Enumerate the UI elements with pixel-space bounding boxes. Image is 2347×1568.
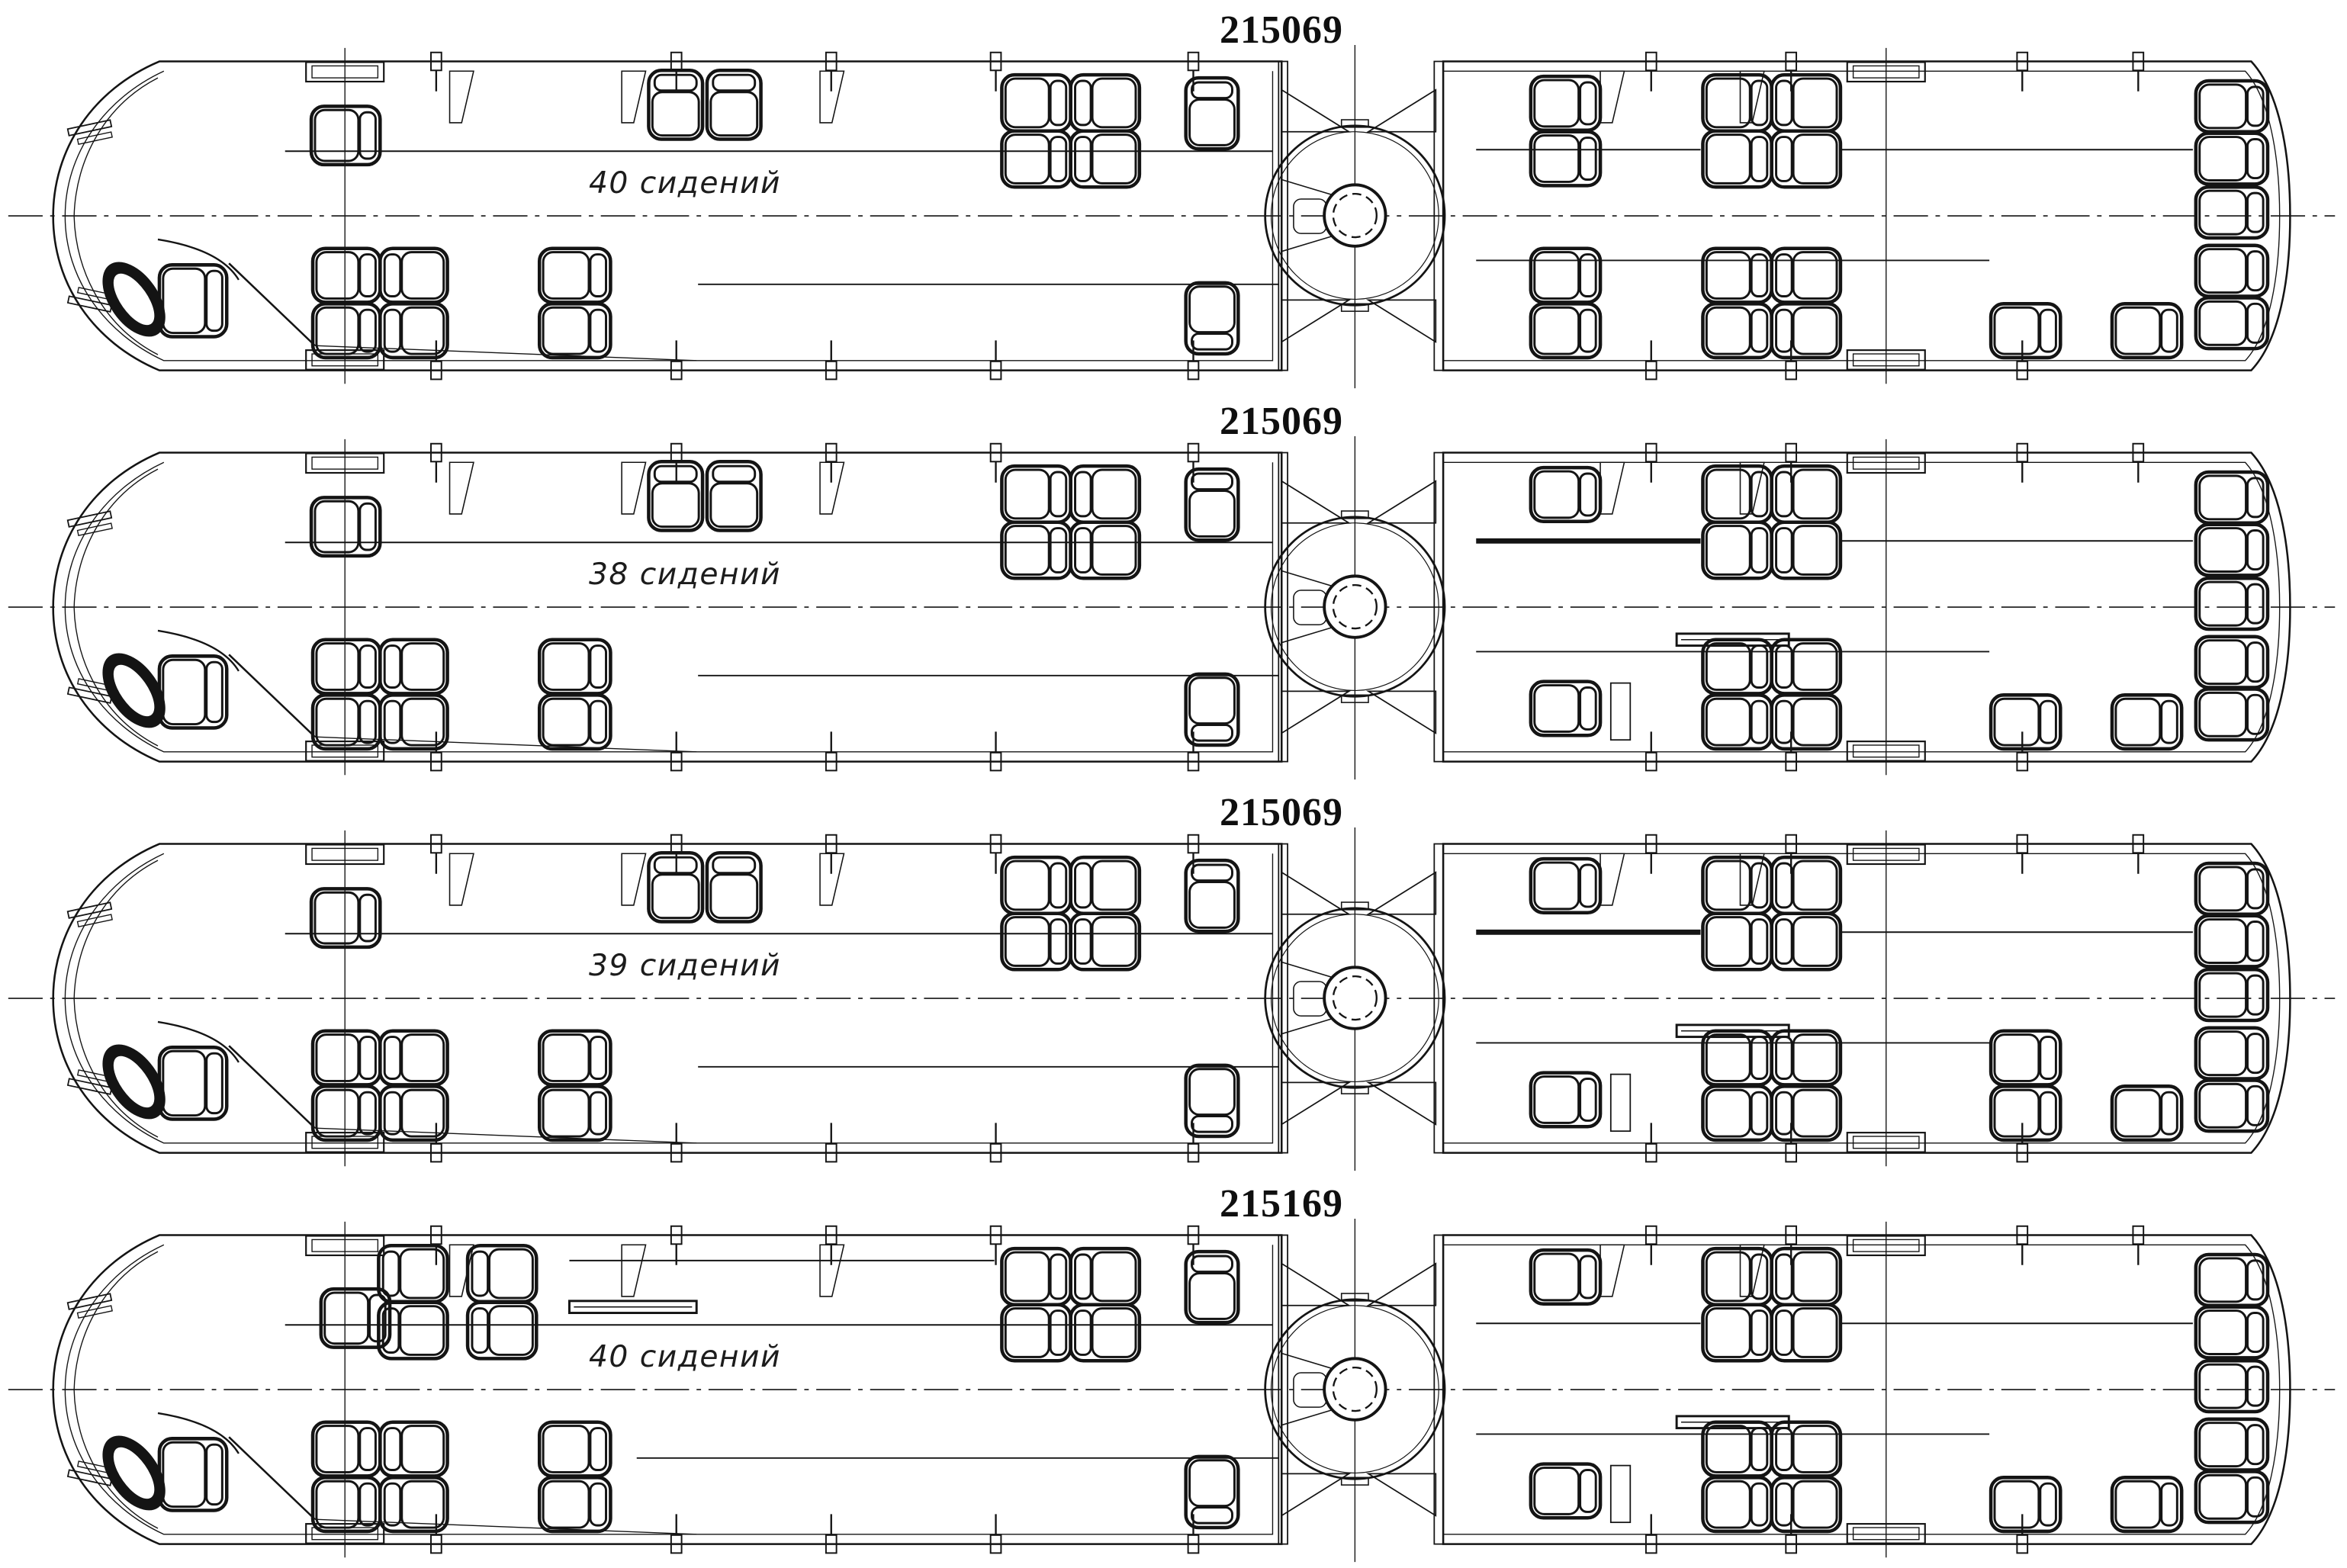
seat-outline — [313, 249, 380, 303]
passenger-seat — [380, 1031, 447, 1085]
seat-cushion — [543, 1090, 589, 1136]
seat-outline — [1071, 131, 1140, 188]
seat-backrest — [2040, 310, 2056, 352]
seat-cushion — [1706, 1090, 1750, 1136]
seat-cushion — [1092, 861, 1136, 910]
seat-cushion — [1092, 470, 1136, 519]
seat-backrest — [2248, 1034, 2264, 1073]
bus-floorplan-drawing: 40 сидений — [0, 43, 2347, 394]
stanchion — [2133, 1226, 2143, 1265]
seat-backrest — [1776, 529, 1792, 573]
passenger-seat — [539, 304, 610, 358]
door-pillar — [1600, 853, 1624, 905]
bus-plan-row-2: 215069 38 сидений — [0, 391, 2347, 782]
seat-backrest — [1580, 1079, 1596, 1121]
passenger-seat — [380, 249, 447, 303]
seat-backrest — [1075, 137, 1092, 182]
joint-wheel-flap — [1368, 300, 1436, 342]
bus-floorplan-drawing: 39 сидений — [0, 825, 2347, 1177]
door-pillar — [450, 462, 474, 514]
seat-cushion — [1190, 1460, 1235, 1506]
passenger-seat — [539, 640, 610, 694]
seat-cushion — [1995, 699, 2039, 745]
door-pillar — [1600, 71, 1624, 123]
seat-outline — [1531, 1464, 1600, 1518]
seat-backrest — [590, 1483, 606, 1525]
passenger-seat — [1001, 131, 1070, 188]
passenger-seat — [1702, 1086, 1771, 1140]
seat-backrest — [2248, 584, 2264, 623]
seat-outline — [1702, 249, 1771, 303]
passenger-seat — [1071, 1248, 1140, 1305]
stanchion — [431, 53, 442, 92]
seat-outline — [2196, 689, 2268, 740]
seat-backrest — [207, 1444, 223, 1504]
seat-cushion — [163, 1442, 205, 1506]
passenger-seat — [2196, 1361, 2268, 1412]
passenger-seat — [1702, 522, 1771, 579]
seat-outline — [1531, 468, 1600, 522]
seat-cushion — [1535, 80, 1579, 127]
passenger-seat — [2196, 1471, 2268, 1522]
passenger-seat — [539, 1422, 610, 1476]
seat-backrest — [1776, 1255, 1792, 1299]
stanchion — [2017, 340, 2027, 379]
stanchion — [671, 1226, 682, 1265]
driver-area — [68, 902, 696, 1143]
bus-plan-row-4: 215169 40 сидений — [0, 1174, 2347, 1565]
passenger-seat — [2196, 637, 2268, 688]
joint-wheel-flap — [1281, 1082, 1349, 1124]
stanchion — [991, 1226, 1001, 1265]
seat-outline — [1702, 640, 1771, 694]
seat-backrest — [1075, 920, 1092, 964]
seat-outline — [2196, 1307, 2268, 1358]
seat-backrest — [1751, 920, 1767, 964]
seat-backrest — [360, 1037, 376, 1079]
driver-seat — [159, 1047, 227, 1119]
seats-count-label: 38 сидений — [589, 557, 781, 592]
seat-backrest — [713, 466, 755, 482]
seat-backrest — [360, 646, 376, 688]
stanchion — [1646, 1514, 1657, 1553]
passenger-seat — [1772, 914, 1841, 970]
seat-outline — [1531, 1250, 1600, 1304]
seat-cushion — [1706, 861, 1750, 910]
passenger-seat — [1772, 1422, 1841, 1476]
seat-cushion — [1190, 882, 1235, 928]
seat-backrest — [1776, 701, 1792, 743]
seat-backrest — [1580, 82, 1596, 124]
passenger-seat — [1702, 640, 1771, 694]
passenger-seat — [380, 1422, 447, 1476]
seat-outline — [1071, 522, 1140, 579]
seat-backrest — [1751, 529, 1767, 573]
seat-outline — [2196, 133, 2268, 185]
seat-cushion — [1092, 526, 1136, 575]
passenger-seat — [539, 249, 610, 303]
seat-backrest — [1192, 865, 1233, 881]
seat-cushion — [2200, 137, 2246, 181]
seat-cushion — [2200, 867, 2246, 911]
seat-backrest — [1192, 1256, 1233, 1272]
passenger-seat — [1531, 859, 1600, 913]
passenger-seat — [311, 106, 380, 165]
seat-cushion — [1793, 1035, 1837, 1081]
seat-cushion — [163, 268, 205, 333]
passenger-seat — [1001, 1305, 1070, 1361]
passenger-seat — [1702, 249, 1771, 303]
seat-outline — [1702, 522, 1771, 579]
seat-outline — [380, 249, 447, 303]
seat-backrest — [1075, 81, 1092, 125]
stanchion — [991, 53, 1001, 92]
passenger-seat — [2196, 1419, 2268, 1470]
passenger-seat — [311, 888, 380, 947]
seat-outline — [1702, 695, 1771, 749]
seat-outline — [2196, 297, 2268, 349]
seat-cushion — [2200, 973, 2246, 1017]
seat-cushion — [1706, 1426, 1750, 1473]
seat-cushion — [1005, 1309, 1049, 1358]
seat-cushion — [1005, 917, 1049, 966]
seat-cushion — [2200, 529, 2246, 572]
seat-cushion — [1535, 252, 1579, 299]
seat-cushion — [1092, 917, 1136, 966]
seat-cushion — [1706, 1481, 1750, 1528]
door-pillar — [622, 462, 645, 514]
seat-cushion — [2116, 1481, 2160, 1528]
joint-wheel-flap — [1281, 1473, 1349, 1515]
passenger-seat — [1772, 304, 1841, 358]
seat-cushion — [1793, 917, 1837, 966]
passenger-seat — [1531, 682, 1600, 736]
seat-backrest — [2248, 1367, 2264, 1406]
seat-outline — [1772, 131, 1841, 188]
door-pillar — [622, 1245, 645, 1296]
seat-backrest — [1580, 310, 1596, 352]
seat-cushion — [1706, 252, 1750, 299]
passenger-seat — [539, 1031, 610, 1085]
passenger-seat — [1702, 1305, 1771, 1361]
seat-backrest — [1075, 529, 1092, 573]
seat-outline — [1772, 466, 1841, 522]
seat-outline — [1702, 131, 1771, 188]
seat-outline — [1702, 1305, 1771, 1361]
seat-cushion — [163, 660, 205, 724]
seat-backrest — [207, 662, 223, 721]
stanchion — [431, 444, 442, 483]
joint-wheel-flap — [1281, 872, 1349, 914]
seat-cushion — [2116, 307, 2160, 354]
seat-outline — [313, 640, 380, 694]
stanchion — [431, 731, 442, 770]
seat-cushion — [1995, 1090, 2039, 1136]
stanchion — [1646, 731, 1657, 770]
seat-cushion — [1535, 1468, 1579, 1515]
seat-backrest — [1580, 1256, 1596, 1298]
seat-cushion — [543, 1035, 589, 1081]
passenger-seat — [1071, 466, 1140, 522]
seat-cushion — [402, 1090, 444, 1136]
seat-cushion — [1793, 252, 1837, 299]
stanchion — [826, 835, 837, 874]
passenger-seat — [1071, 75, 1140, 131]
seat-cushion — [543, 644, 589, 690]
seat-backrest — [2248, 922, 2264, 961]
seat-outline — [468, 1303, 536, 1359]
seat-outline — [1772, 75, 1841, 131]
seat-outline — [1991, 1086, 2060, 1140]
seat-outline — [2196, 1028, 2268, 1079]
stanchion — [991, 1123, 1001, 1162]
seat-cushion — [1092, 1309, 1136, 1358]
joint-wheel-flap — [1281, 300, 1349, 342]
joint-wheel-flap — [1368, 1264, 1436, 1306]
passenger-seat — [2196, 1028, 2268, 1079]
seat-backrest — [360, 255, 376, 297]
seat-outline — [313, 1422, 380, 1476]
seat-backrest — [1580, 1470, 1596, 1512]
passenger-seat — [2196, 525, 2268, 576]
seat-cushion — [543, 1481, 589, 1528]
seat-backrest — [1776, 310, 1792, 352]
passenger-seat — [1702, 1477, 1771, 1531]
stanchion — [1646, 444, 1657, 483]
seat-cushion — [2200, 301, 2246, 345]
seat-outline — [1702, 1477, 1771, 1531]
seat-outline — [1991, 1031, 2060, 1085]
passenger-seat — [1071, 857, 1140, 914]
seat-outline — [1772, 1031, 1841, 1085]
seat-cushion — [402, 699, 444, 745]
driver-area — [68, 511, 696, 752]
seat-outline — [1531, 249, 1600, 303]
stanchion — [431, 1123, 442, 1162]
seat-backrest — [1192, 1117, 1233, 1133]
seat-cushion — [400, 1306, 444, 1355]
joint-wheel-flap — [1368, 481, 1436, 523]
seats-count-label: 39 сидений — [589, 949, 781, 983]
seat-outline — [1702, 304, 1771, 358]
seat-cushion — [1995, 307, 2039, 354]
seat-cushion — [1190, 678, 1235, 724]
stanchion — [2017, 731, 2027, 770]
seat-cushion — [2200, 1311, 2246, 1354]
seat-backrest — [360, 701, 376, 743]
stanchion — [991, 444, 1001, 483]
seat-cushion — [1535, 136, 1579, 182]
seat-cushion — [711, 484, 757, 527]
seat-outline — [311, 497, 380, 556]
seat-outline — [1772, 914, 1841, 970]
seat-backrest — [1075, 863, 1092, 908]
passenger-seat — [1702, 695, 1771, 749]
seat-outline — [159, 1047, 227, 1119]
passenger-seat — [539, 695, 610, 749]
stanchion — [826, 340, 837, 379]
passenger-seat — [1772, 640, 1841, 694]
seat-outline — [2112, 695, 2181, 749]
seat-backrest — [2248, 140, 2264, 178]
seat-cushion — [402, 252, 444, 299]
stanchion — [2017, 53, 2027, 92]
passenger-seat — [1531, 1250, 1600, 1304]
seat-outline — [1001, 131, 1070, 188]
passenger-seat — [1531, 1073, 1600, 1127]
passenger-seat — [1071, 914, 1140, 970]
seat-cushion — [711, 875, 757, 918]
seat-backrest — [472, 1309, 488, 1353]
seat-backrest — [2248, 1261, 2264, 1300]
seat-cushion — [1005, 861, 1049, 910]
seat-backrest — [384, 646, 400, 688]
seat-backrest — [1776, 1311, 1792, 1355]
seat-cushion — [1005, 135, 1049, 184]
seat-backrest — [2248, 643, 2264, 682]
seat-outline — [159, 265, 227, 336]
seat-outline — [539, 640, 610, 694]
seat-cushion — [1005, 526, 1049, 575]
passenger-seat — [1001, 857, 1070, 914]
seat-backrest — [1050, 529, 1066, 573]
bus-floorplan-drawing: 40 сидений — [0, 1216, 2347, 1568]
seat-backrest — [590, 255, 606, 297]
seat-cushion — [315, 501, 358, 552]
seat-backrest — [360, 1092, 376, 1134]
seat-outline — [1702, 914, 1771, 970]
seat-cushion — [1995, 1035, 2039, 1081]
seat-outline — [1071, 466, 1140, 522]
seat-outline — [1531, 304, 1600, 358]
seat-cushion — [1535, 471, 1579, 518]
stanchion — [826, 444, 837, 483]
seat-cushion — [652, 92, 699, 136]
seat-outline — [1071, 1305, 1140, 1361]
seat-backrest — [1751, 137, 1767, 182]
seat-backrest — [384, 1483, 400, 1525]
seat-outline — [2196, 1419, 2268, 1470]
seat-backrest — [2248, 478, 2264, 517]
seat-cushion — [1706, 526, 1750, 575]
seat-cushion — [2200, 1258, 2246, 1302]
passenger-seat — [1071, 1305, 1140, 1361]
seats-count-label: 40 сидений — [589, 1340, 781, 1374]
passenger-seat — [2196, 133, 2268, 185]
stanchion — [991, 835, 1001, 874]
seat-cushion — [1793, 307, 1837, 354]
seat-outline — [2196, 1361, 2268, 1412]
passenger-seat — [707, 461, 761, 530]
door-pillar — [450, 71, 474, 123]
seat-outline — [2112, 304, 2181, 358]
seat-cushion — [1793, 79, 1837, 127]
seat-backrest — [2162, 1092, 2178, 1134]
cab-partition-line — [229, 263, 315, 345]
passenger-seat — [1702, 1031, 1771, 1085]
passenger-seat — [1772, 131, 1841, 188]
seat-backrest — [590, 1092, 606, 1134]
seat-backrest — [2040, 1483, 2056, 1525]
seat-cushion — [1706, 1309, 1750, 1358]
seat-outline — [539, 304, 610, 358]
seat-cushion — [1793, 699, 1837, 745]
seat-backrest — [472, 1252, 488, 1296]
seat-outline — [539, 1031, 610, 1085]
passenger-seat — [707, 70, 761, 139]
seat-cushion — [402, 307, 444, 354]
stanchion — [1646, 1226, 1657, 1265]
seat-cushion — [1092, 79, 1136, 127]
seat-cushion — [1190, 287, 1235, 333]
seat-outline — [2196, 525, 2268, 576]
seat-backrest — [384, 255, 400, 297]
seat-cushion — [1706, 699, 1750, 745]
seat-backrest — [207, 1053, 223, 1113]
seat-backrest — [1050, 81, 1066, 125]
seat-backrest — [2248, 531, 2264, 570]
seat-backrest — [1580, 474, 1596, 516]
passenger-seat — [1772, 1031, 1841, 1085]
seat-backrest — [2248, 1425, 2264, 1464]
passenger-seat — [539, 1477, 610, 1531]
seat-backrest — [360, 1428, 376, 1470]
seat-cushion — [2200, 191, 2246, 234]
passenger-seat — [2196, 1080, 2268, 1131]
seat-cushion — [400, 1249, 444, 1298]
seat-backrest — [1050, 920, 1066, 964]
seat-backrest — [1751, 701, 1767, 743]
seat-outline — [1702, 1422, 1771, 1476]
seat-outline — [1772, 304, 1841, 358]
seat-outline — [1001, 466, 1070, 522]
seat-outline — [311, 888, 380, 947]
seat-outline — [1772, 522, 1841, 579]
seat-outline — [539, 695, 610, 749]
driver-seat — [159, 265, 227, 336]
seat-cushion — [1793, 470, 1837, 519]
seat-cushion — [1092, 1252, 1136, 1301]
seat-outline — [1772, 1305, 1841, 1361]
passenger-seat — [1772, 1305, 1841, 1361]
seat-backrest — [1075, 1255, 1092, 1299]
stanchion — [2017, 835, 2027, 874]
seat-outline — [1001, 1305, 1070, 1361]
seat-outline — [311, 106, 380, 165]
seat-backrest — [1776, 863, 1792, 908]
seat-cushion — [317, 644, 358, 690]
passenger-seat — [1772, 1086, 1841, 1140]
seat-outline — [1772, 1422, 1841, 1476]
stanchion — [2133, 835, 2143, 874]
seat-cushion — [1793, 1252, 1837, 1301]
passenger-seat — [1991, 1477, 2060, 1531]
passenger-seat — [1772, 522, 1841, 579]
seat-cushion — [2200, 582, 2246, 625]
seat-backrest — [2248, 1313, 2264, 1352]
passenger-seat — [1772, 75, 1841, 131]
seat-backrest — [1751, 310, 1767, 352]
seat-outline — [468, 1245, 536, 1302]
seat-outline — [380, 1031, 447, 1085]
seat-cushion — [1190, 1069, 1235, 1115]
passenger-seat — [1991, 695, 2060, 749]
seat-outline — [2196, 187, 2268, 238]
stanchion — [1646, 835, 1657, 874]
seat-backrest — [2040, 1092, 2056, 1134]
seat-outline — [1772, 857, 1841, 914]
seat-cushion — [1793, 135, 1837, 184]
